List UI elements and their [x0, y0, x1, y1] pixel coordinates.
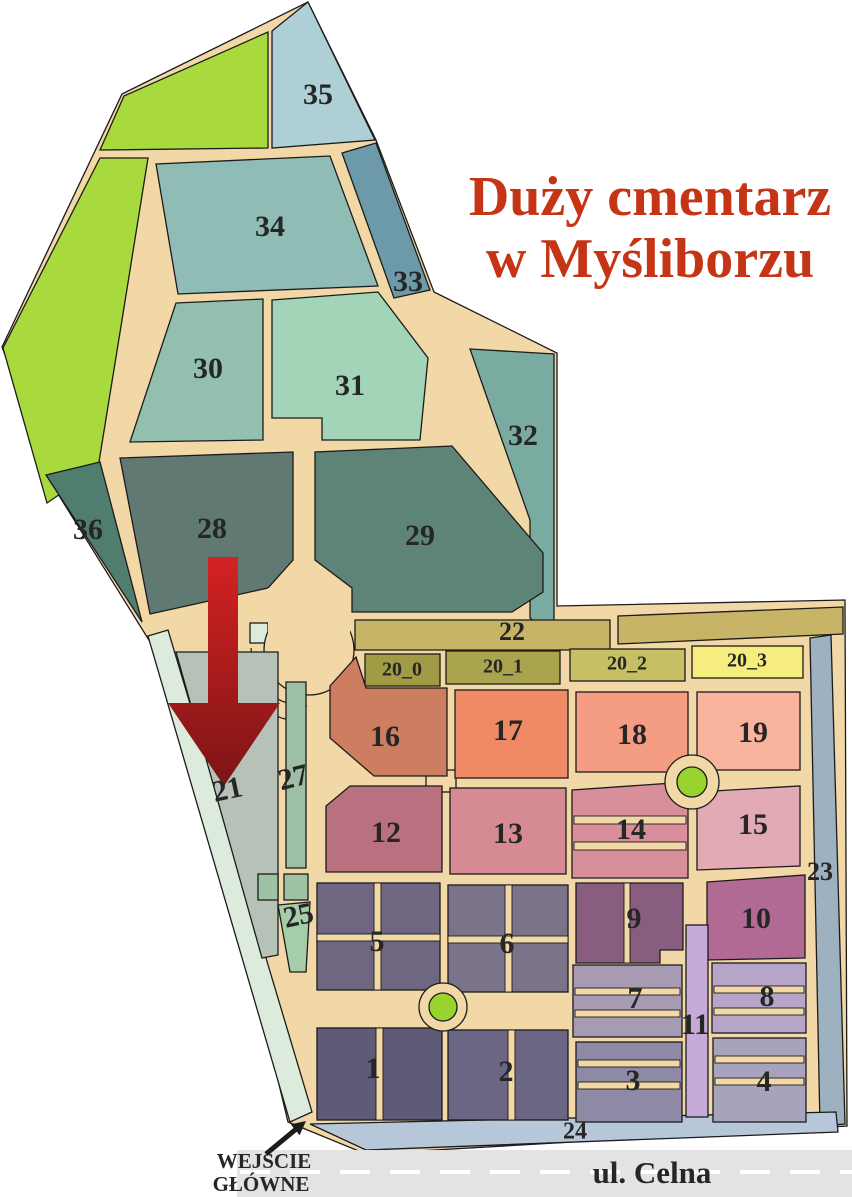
section-6-label: 6 [500, 927, 515, 960]
section-35-label: 35 [303, 78, 333, 111]
section-3-label: 3 [626, 1064, 641, 1097]
section-30-label: 30 [193, 352, 223, 385]
section-7-label: 7 [628, 982, 643, 1015]
map-title-line2: w Myśliborzu [486, 228, 814, 290]
section-35-area [272, 2, 375, 148]
section-8-label: 8 [760, 980, 775, 1013]
section-31-label: 31 [335, 369, 365, 402]
section-20-1-label: 20_1 [483, 656, 523, 678]
section-29-label: 29 [405, 519, 435, 552]
section-20-3-label: 20_3 [727, 650, 767, 672]
section-11-label: 11 [681, 1008, 709, 1041]
mint-cell-a [258, 874, 278, 900]
section-16-label: 16 [370, 720, 400, 753]
section-15-label: 15 [738, 808, 768, 841]
section-5-label: 5 [370, 925, 385, 958]
section-33-label: 33 [393, 265, 423, 298]
entrance-label-line2: GŁÓWNE [213, 1172, 310, 1196]
section-17-label: 17 [493, 714, 523, 747]
entrance-label-line1: WEJŚCIE [217, 1149, 312, 1173]
section-32-label: 32 [508, 419, 538, 452]
road-22-box-area [355, 620, 610, 650]
section-20-2-label: 20_2 [607, 653, 647, 675]
street-label: ul. Celna [593, 1155, 712, 1190]
road-23-label: 23 [807, 857, 833, 886]
map-title-line1: Duży cmentarz [469, 166, 831, 228]
green-area-top [100, 32, 268, 150]
section-13-label: 13 [493, 817, 523, 850]
section-4-stripe [715, 1056, 804, 1063]
section-20-0-label: 20_0 [382, 659, 422, 681]
section-1-label: 1 [366, 1052, 381, 1085]
section-12-label: 12 [371, 816, 401, 849]
section-28-label: 28 [197, 512, 227, 545]
plaza-rect [268, 588, 350, 650]
section-36-label: 36 [73, 513, 103, 546]
section-2-label: 2 [499, 1055, 514, 1088]
section-14-label: 14 [616, 813, 646, 846]
section-19-label: 19 [738, 716, 768, 749]
section-18-label: 18 [617, 718, 647, 751]
mint-cell-b [284, 874, 308, 900]
roundabout-1-green [677, 767, 707, 797]
roundabout-2-green [429, 993, 457, 1021]
road-24-label: 24 [563, 1119, 587, 1145]
cemetery-map: ul. Celna 35 34 33 30 31 32 36 28 29 22 … [0, 0, 852, 1197]
section-4-label: 4 [757, 1065, 772, 1098]
road-22-label: 22 [499, 617, 525, 646]
section-10-label: 10 [741, 902, 771, 935]
section-9-label: 9 [627, 902, 642, 935]
section-34-label: 34 [255, 210, 285, 243]
